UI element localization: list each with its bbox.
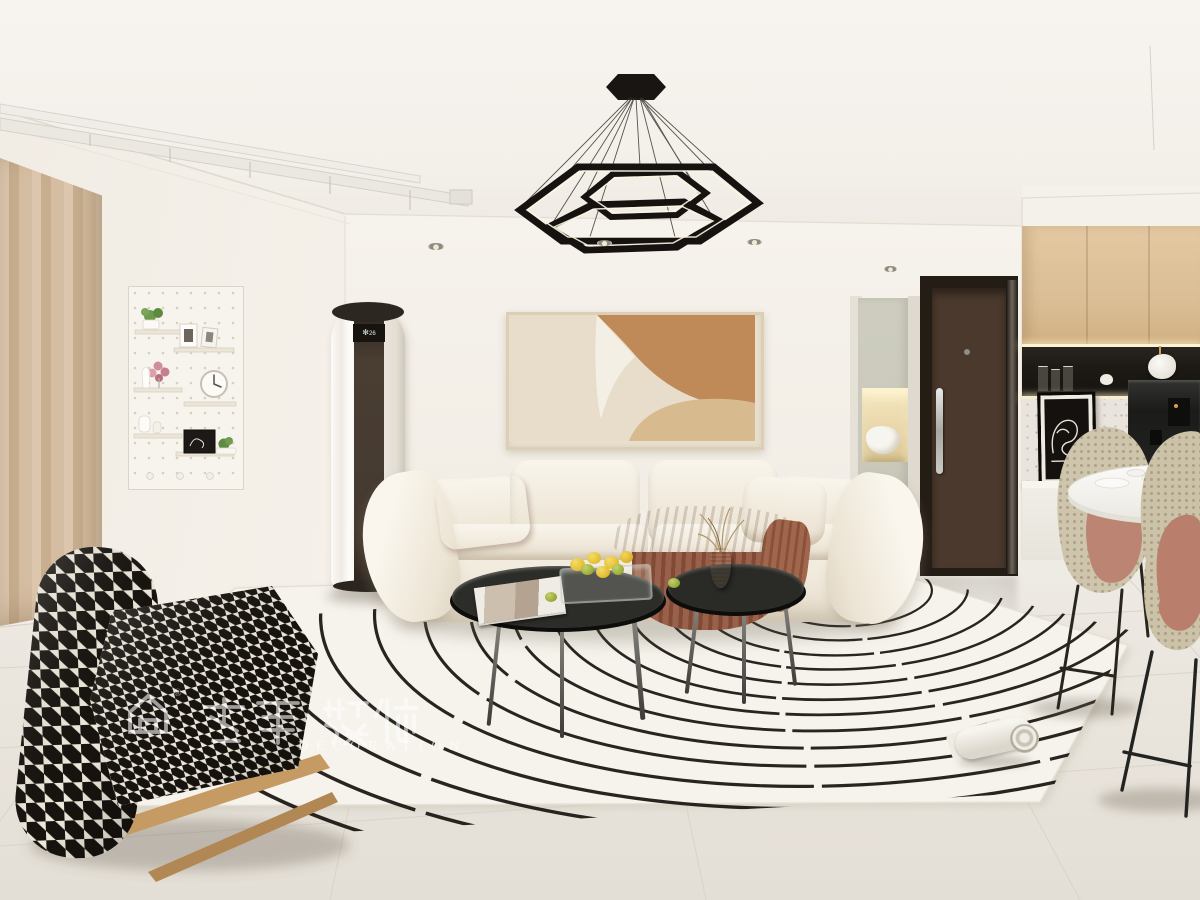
lemon — [587, 552, 601, 564]
living-room-render: ✻26 — [0, 0, 1200, 900]
kitchen-base-cabinets — [1022, 488, 1200, 560]
niche-glass — [1063, 366, 1073, 391]
door-slab — [932, 288, 1006, 568]
machine-tray — [1140, 462, 1176, 468]
counter-glass — [1126, 458, 1138, 482]
lime — [581, 564, 594, 575]
pegboard-clock — [201, 371, 227, 397]
pegboard-shelf — [128, 286, 244, 490]
door-handle — [936, 388, 943, 474]
rust-lumbar-pillow — [434, 473, 532, 551]
machine-indicator — [1174, 404, 1178, 408]
niche-glass — [1051, 369, 1060, 391]
downlight — [884, 266, 897, 272]
countertop-edge — [1022, 481, 1200, 488]
lemon — [596, 566, 610, 578]
downlight — [747, 239, 762, 245]
lime-on-table — [668, 578, 680, 588]
watermark-logo-icon — [130, 696, 166, 732]
cabinet-seam — [1086, 226, 1088, 346]
abstract-art-canvas — [509, 315, 755, 441]
ac-top-cap — [332, 302, 404, 322]
lemon — [620, 551, 633, 563]
table-leg — [742, 612, 746, 704]
line-art-sketch — [1040, 395, 1087, 478]
coffee-machine — [1128, 380, 1200, 482]
lime — [612, 564, 624, 575]
watermark-registered: ® — [174, 688, 182, 699]
mug-hook — [1159, 346, 1161, 355]
side-table-top — [668, 564, 804, 612]
watermark: ® DECORATION — [118, 684, 498, 772]
counter-glass — [1112, 461, 1123, 482]
table-leg — [560, 628, 564, 738]
machine-spout — [1150, 430, 1162, 445]
right-soffit-band — [1022, 186, 1200, 228]
door-peephole — [964, 349, 970, 355]
counter-glass — [1098, 458, 1110, 482]
rolled-magazine-end — [1010, 724, 1039, 753]
watermark-en-text: DECORATION — [298, 739, 467, 755]
downlight — [428, 243, 444, 250]
machine-panel — [1168, 398, 1190, 426]
watermark-cn-text — [376, 700, 417, 742]
niche-glass — [1038, 366, 1048, 391]
watermark-cn-text — [325, 700, 367, 744]
lime-on-table — [545, 592, 557, 602]
niche-white-ornament — [1100, 374, 1113, 385]
watermark-cn-char — [258, 703, 298, 743]
door-floor-reflection — [925, 576, 1017, 634]
downlight — [597, 240, 612, 246]
hanging-mug — [1148, 354, 1176, 379]
watermark-cn-char — [205, 699, 243, 741]
kitchen-upper-cabinets — [1022, 226, 1200, 346]
cabinet-seam — [1148, 226, 1150, 346]
door-frame-bevel-right — [1006, 280, 1018, 574]
ac-display: ✻26 — [353, 324, 385, 342]
curtain — [0, 158, 102, 626]
abstract-wall-art — [506, 312, 764, 450]
